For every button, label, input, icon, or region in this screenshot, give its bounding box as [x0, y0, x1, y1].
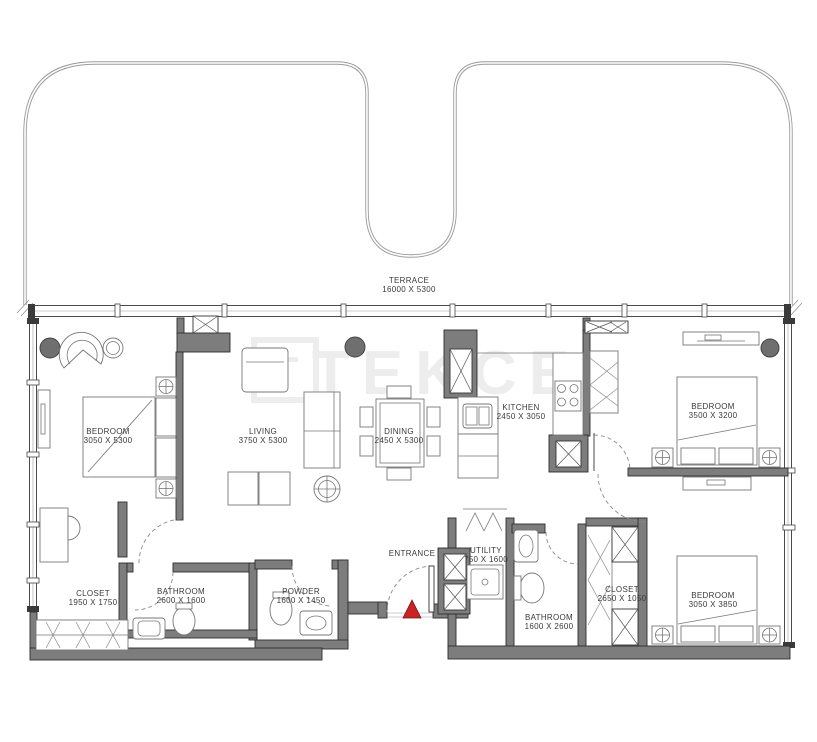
bed-pillow [681, 626, 715, 642]
wall-segment [378, 602, 387, 618]
watermark: T TEKCE [254, 339, 582, 408]
floor-plan-page: T TEKCE [0, 0, 817, 742]
window-mullion [783, 525, 795, 530]
dining-chair [387, 386, 411, 398]
terrace-boundary [25, 63, 791, 305]
wall-segment [638, 518, 647, 652]
washing-machine [467, 565, 503, 599]
wall-segment [506, 518, 514, 648]
vanity-sink [300, 611, 332, 635]
nightstand [759, 448, 780, 467]
wall-segment [348, 602, 382, 614]
armchair [242, 348, 288, 392]
window-mullion [702, 304, 707, 317]
dining-chair [360, 407, 373, 427]
nightstand [156, 377, 176, 396]
ac-shaft-box [193, 316, 218, 333]
toilet [520, 573, 544, 603]
nightstand [652, 626, 673, 644]
wall-segment [628, 468, 788, 476]
floor-plan-svg: T TEKCE [0, 0, 817, 742]
desk [40, 508, 68, 562]
label-utility: UTILITY750 X 1600 [464, 546, 508, 564]
dining-chair [427, 407, 440, 427]
label-bathroom-1: BATHROOM2600 X 1600 [157, 587, 206, 605]
window-mullion [450, 304, 455, 317]
dining-chair [387, 468, 411, 480]
window-mullion [27, 578, 39, 583]
wall-segment [127, 563, 133, 572]
label-bathroom-2: BATHROOM1600 X 2600 [525, 613, 574, 631]
bed-pillow [156, 438, 176, 477]
wall-segment [118, 502, 127, 557]
terrace-corner-hatch [17, 300, 802, 316]
window-mullion [27, 452, 39, 457]
label-bedroom-3: BEDROOM3050 X 3850 [689, 591, 738, 609]
label-powder: POWDER1600 X 1450 [277, 587, 326, 605]
label-bedroom-2: BEDROOM3500 X 3200 [689, 402, 738, 420]
tv-console [683, 477, 751, 490]
island-shaft-box [556, 441, 581, 467]
bed-pillow [681, 448, 715, 464]
wall-segment [177, 333, 230, 352]
column [345, 337, 365, 357]
window-mullion [27, 522, 39, 527]
door-arc-bathroom-2 [546, 532, 578, 564]
pantry-cabinet [590, 351, 618, 413]
window-mullion [115, 304, 120, 317]
bed-pillow [156, 398, 176, 436]
wardrobe [36, 620, 128, 650]
sofa [304, 392, 340, 468]
door-arc-bedroom-2 [594, 435, 630, 471]
coffee-table [228, 472, 258, 505]
wall-segment [448, 518, 456, 548]
label-closet-1: CLOSET1950 X 1750 [69, 589, 118, 607]
column [761, 339, 779, 357]
window-mullion [546, 304, 551, 317]
wall-segment [583, 330, 590, 436]
entrance-marker [403, 600, 421, 618]
entrance-shaft-box-1 [444, 554, 466, 580]
kitchen-shaft-box [450, 349, 472, 393]
label-terrace: TERRACE16000 X 5300 [382, 276, 436, 294]
label-kitchen: KITCHEN2450 X 3050 [497, 403, 546, 421]
wall-segment [173, 563, 257, 572]
toilet [173, 607, 195, 635]
window-mullion [341, 304, 346, 317]
plant [314, 476, 340, 502]
wall-segment [586, 518, 646, 526]
door-arc-bedroom-3 [598, 474, 646, 522]
wall-segment [578, 524, 586, 652]
desk-chair [68, 516, 80, 540]
kitchen-sink [463, 404, 492, 428]
wall-segment [338, 560, 348, 648]
column [40, 338, 60, 358]
dining-chair [360, 436, 373, 456]
wall-segment [448, 646, 790, 659]
wall-segment [255, 560, 292, 569]
nightstand [156, 479, 176, 498]
vent-shaft [585, 321, 628, 333]
wall-segment [249, 563, 257, 640]
door-arc-bedroom-1 [139, 519, 183, 563]
toilet-tank [514, 576, 521, 600]
bed-pillow [719, 448, 753, 464]
bed-pillow [719, 626, 753, 642]
label-entrance: ENTRANCE [389, 549, 435, 558]
window-mullion [27, 380, 39, 385]
label-bedroom-1: BEDROOM3050 X 5300 [84, 427, 133, 445]
coffee-table [259, 472, 290, 505]
nightstand [652, 448, 673, 467]
wall-segment [177, 318, 184, 334]
entrance-shaft-box-2 [444, 584, 466, 610]
nightstand [759, 626, 780, 644]
cooktop [555, 381, 581, 411]
bifold-door [463, 509, 507, 531]
wall-segment [176, 352, 183, 520]
side-table [103, 338, 123, 358]
dining-chair [427, 436, 440, 456]
door-leaf-entrance [429, 566, 434, 612]
wall-segment [448, 614, 456, 648]
tv-console [38, 390, 50, 448]
window-mullion [222, 304, 227, 317]
label-living: LIVING3750 X 5300 [239, 427, 288, 445]
terrace-boundary-inner [25, 63, 791, 305]
window-mullion [622, 304, 627, 317]
